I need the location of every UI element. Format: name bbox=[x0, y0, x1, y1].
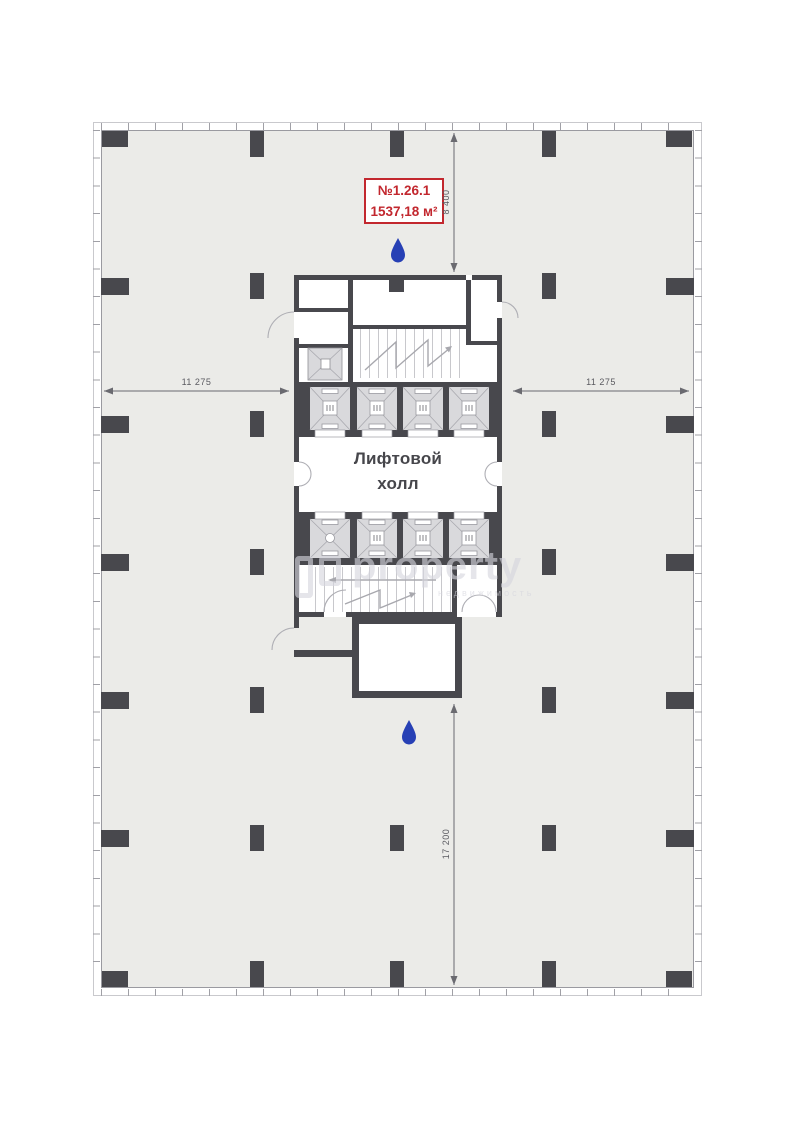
water-drop-icon-top bbox=[391, 238, 405, 263]
stairwell-lower bbox=[313, 567, 452, 612]
column bbox=[542, 825, 556, 851]
column bbox=[666, 692, 694, 709]
unit-area: 1537,18 м² bbox=[366, 201, 442, 222]
column bbox=[101, 830, 129, 847]
column bbox=[542, 273, 556, 299]
elevator-bank-upper bbox=[294, 382, 502, 437]
column bbox=[542, 131, 556, 157]
column bbox=[250, 825, 264, 851]
water-drop-icon-bottom bbox=[402, 720, 416, 745]
column bbox=[101, 416, 129, 433]
column bbox=[542, 961, 556, 987]
dimension-label-left: 11 275 bbox=[170, 377, 223, 387]
plan-drawing bbox=[0, 0, 800, 1131]
column bbox=[250, 273, 264, 299]
shaft bbox=[308, 348, 342, 380]
column bbox=[250, 687, 264, 713]
column bbox=[101, 554, 129, 571]
elevator-bank-lower bbox=[294, 512, 502, 565]
column bbox=[542, 687, 556, 713]
column bbox=[250, 131, 264, 157]
service-room bbox=[352, 617, 462, 698]
elevator-hall-label-line1: Лифтовой bbox=[343, 449, 453, 469]
column bbox=[666, 971, 692, 987]
unit-area-label: №1.26.1 1537,18 м² bbox=[364, 178, 444, 224]
dimension-label-bottom: 17 200 bbox=[441, 821, 451, 867]
column bbox=[666, 416, 694, 433]
column bbox=[250, 411, 264, 437]
column bbox=[390, 825, 404, 851]
unit-number: №1.26.1 bbox=[366, 180, 442, 201]
column bbox=[101, 278, 129, 295]
column bbox=[666, 131, 692, 147]
column bbox=[390, 961, 404, 987]
column bbox=[542, 411, 556, 437]
column bbox=[666, 278, 694, 295]
column bbox=[102, 971, 128, 987]
column bbox=[250, 961, 264, 987]
dimension-label-top: 8 400 bbox=[441, 182, 451, 222]
column bbox=[666, 554, 694, 571]
column bbox=[666, 830, 694, 847]
elevator-hall-label-line2: холл bbox=[343, 474, 453, 494]
column bbox=[250, 549, 264, 575]
column bbox=[102, 131, 128, 147]
column bbox=[542, 549, 556, 575]
floor-plan-page: property недвижимость №1.26.1 1537,18 м²… bbox=[0, 0, 800, 1131]
column bbox=[390, 131, 404, 157]
stairwell-upper bbox=[353, 329, 466, 378]
column bbox=[101, 692, 129, 709]
dimension-label-right: 11 275 bbox=[574, 377, 628, 387]
